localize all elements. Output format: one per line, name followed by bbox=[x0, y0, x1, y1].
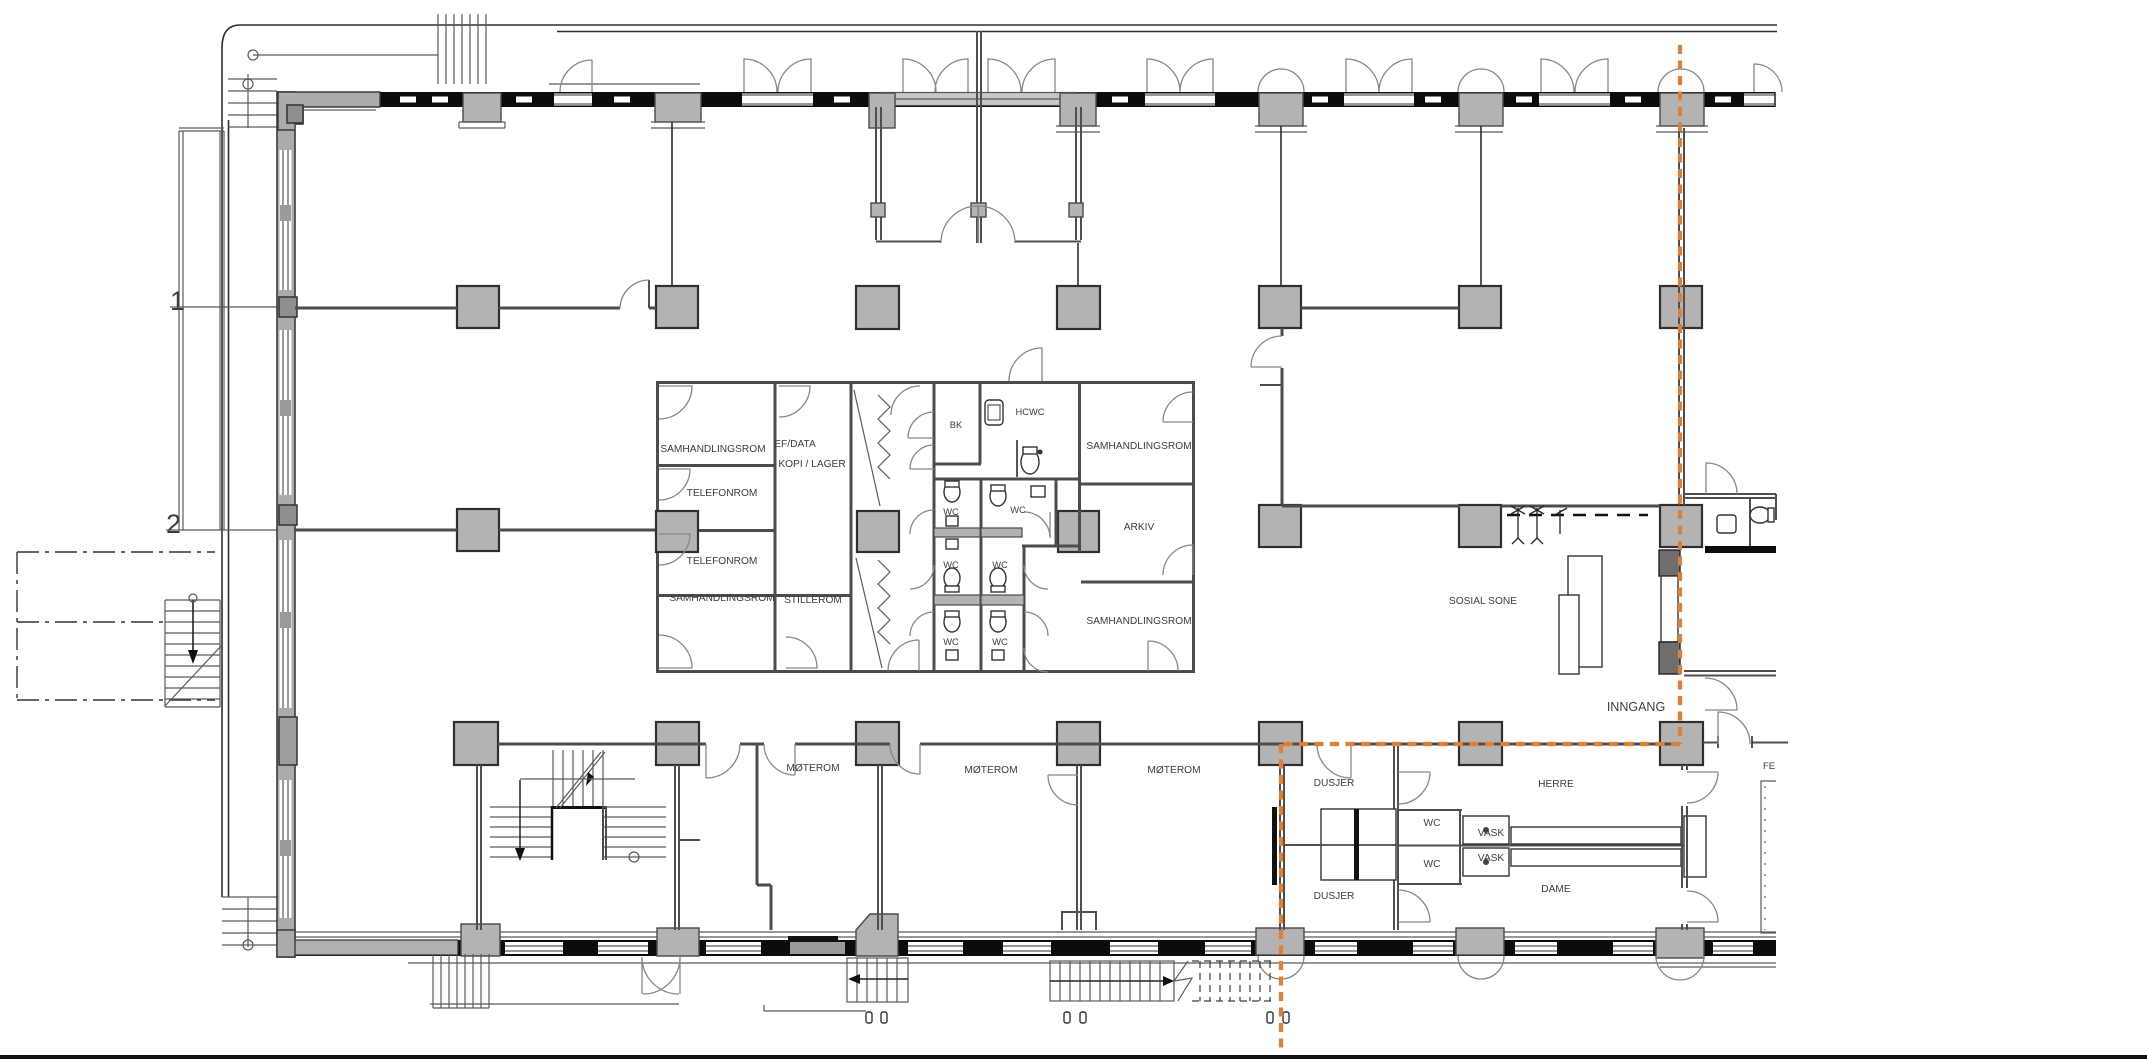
svg-text:DUSJER: DUSJER bbox=[1314, 891, 1355, 902]
svg-text:STILLEROM: STILLEROM bbox=[784, 595, 842, 606]
svg-text:SOSIAL SONE: SOSIAL SONE bbox=[1449, 596, 1517, 607]
svg-text:ARKIV: ARKIV bbox=[1124, 522, 1155, 533]
svg-text:WC: WC bbox=[992, 637, 1008, 647]
svg-text:WC: WC bbox=[992, 560, 1008, 570]
svg-text:SAMHANDLINGSROM: SAMHANDLINGSROM bbox=[1086, 616, 1191, 627]
svg-text:SAMHANDLINGSROM: SAMHANDLINGSROM bbox=[1086, 441, 1191, 452]
svg-text:VASK: VASK bbox=[1478, 828, 1505, 839]
svg-text:MØTEROM: MØTEROM bbox=[1147, 765, 1200, 776]
svg-text:MØTEROM: MØTEROM bbox=[786, 763, 839, 774]
svg-text:MØTEROM: MØTEROM bbox=[964, 765, 1017, 776]
svg-text:DUSJER: DUSJER bbox=[1314, 778, 1355, 789]
svg-text:WC: WC bbox=[943, 507, 959, 517]
svg-text:WC: WC bbox=[943, 637, 959, 647]
svg-text:KOPI / LAGER: KOPI / LAGER bbox=[778, 459, 845, 470]
svg-text:1: 1 bbox=[170, 286, 185, 316]
svg-text:SAMHANDLINGSROM: SAMHANDLINGSROM bbox=[660, 444, 765, 455]
svg-text:HERRE: HERRE bbox=[1538, 779, 1574, 790]
svg-text:TELEFONROM: TELEFONROM bbox=[687, 556, 758, 567]
svg-text:WC: WC bbox=[1424, 818, 1441, 829]
svg-text:WC: WC bbox=[1010, 505, 1026, 515]
svg-text:HCWC: HCWC bbox=[1016, 407, 1045, 417]
svg-text:BK: BK bbox=[950, 420, 963, 430]
svg-text:TELEFONROM: TELEFONROM bbox=[687, 488, 758, 499]
svg-text:SAMHANDLINGSROM: SAMHANDLINGSROM bbox=[669, 593, 774, 604]
svg-text:WC: WC bbox=[943, 560, 959, 570]
svg-text:WC: WC bbox=[1424, 859, 1441, 870]
svg-text:INNGANG: INNGANG bbox=[1607, 700, 1665, 714]
svg-text:VASK: VASK bbox=[1478, 853, 1505, 864]
svg-text:DAME: DAME bbox=[1541, 884, 1571, 895]
svg-text:2: 2 bbox=[166, 509, 181, 539]
svg-text:EF/DATA: EF/DATA bbox=[774, 439, 816, 450]
svg-text:FE: FE bbox=[1763, 761, 1775, 772]
